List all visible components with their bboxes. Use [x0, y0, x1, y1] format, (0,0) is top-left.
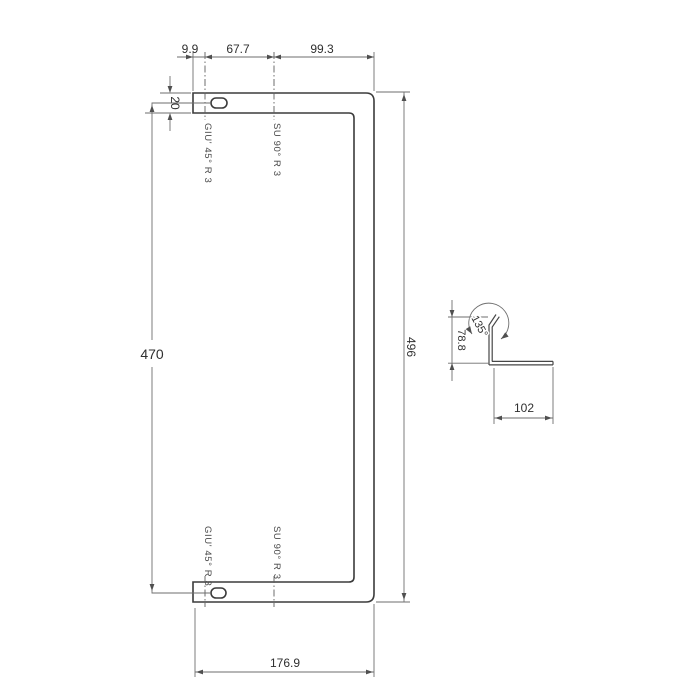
bend-annotations: GIU' 45° R 3 SU 90° R 3 GIU' 45° R 3 SU … [202, 52, 282, 607]
dim-text-99-3: 99.3 [310, 42, 334, 56]
arrowhead [196, 670, 203, 675]
arrowhead [150, 584, 155, 591]
arrowhead [450, 363, 455, 370]
dim-inner-height: 470 [133, 103, 211, 593]
dim-text-135: 135° [468, 314, 489, 340]
profile-outline [193, 93, 374, 602]
arrowhead [205, 55, 212, 60]
technical-drawing-canvas: GIU' 45° R 3 SU 90° R 3 GIU' 45° R 3 SU … [0, 0, 700, 700]
dim-text-470: 470 [140, 346, 164, 362]
section-detail: 78.8 135° 102 [448, 300, 553, 424]
arrowhead [495, 416, 502, 421]
arrowhead [150, 105, 155, 112]
dim-outer-height: 496 [376, 92, 418, 602]
arrowhead [545, 416, 552, 421]
bend-label-top-90: SU 90° R 3 [271, 123, 282, 177]
dim-text-9-9: 9.9 [182, 42, 199, 56]
arrowhead [274, 55, 281, 60]
dim-top-widths: 9.9 67.7 99.3 [177, 42, 374, 91]
section-sheet-inner [492, 317, 499, 362]
bend-label-top-45: GIU' 45° R 3 [202, 123, 213, 183]
dim-text-102: 102 [514, 401, 534, 415]
arrowhead [402, 593, 407, 600]
arrowhead [402, 94, 407, 101]
arrowhead [168, 86, 173, 93]
arrowhead [267, 55, 274, 60]
dim-text-67-7: 67.7 [226, 42, 250, 56]
arrowhead [168, 113, 173, 120]
dim-text-176-9: 176.9 [270, 656, 300, 670]
dim-bottom-width: 176.9 [195, 604, 374, 677]
technical-drawing-page: GIU' 45° R 3 SU 90° R 3 GIU' 45° R 3 SU … [0, 0, 700, 700]
dim-text-496: 496 [404, 337, 418, 357]
bend-label-bottom-45: GIU' 45° R 3 [202, 526, 213, 586]
arrowhead [366, 670, 373, 675]
arrowhead [367, 55, 374, 60]
slot-hole-top [211, 98, 227, 108]
main-profile [193, 93, 374, 602]
dim-text-78-8: 78.8 [455, 329, 467, 350]
section-sheet-base [489, 361, 553, 365]
slot-hole-bottom [211, 588, 226, 598]
arrowhead [450, 310, 455, 317]
bend-label-bottom-90: SU 90° R 3 [271, 526, 282, 580]
